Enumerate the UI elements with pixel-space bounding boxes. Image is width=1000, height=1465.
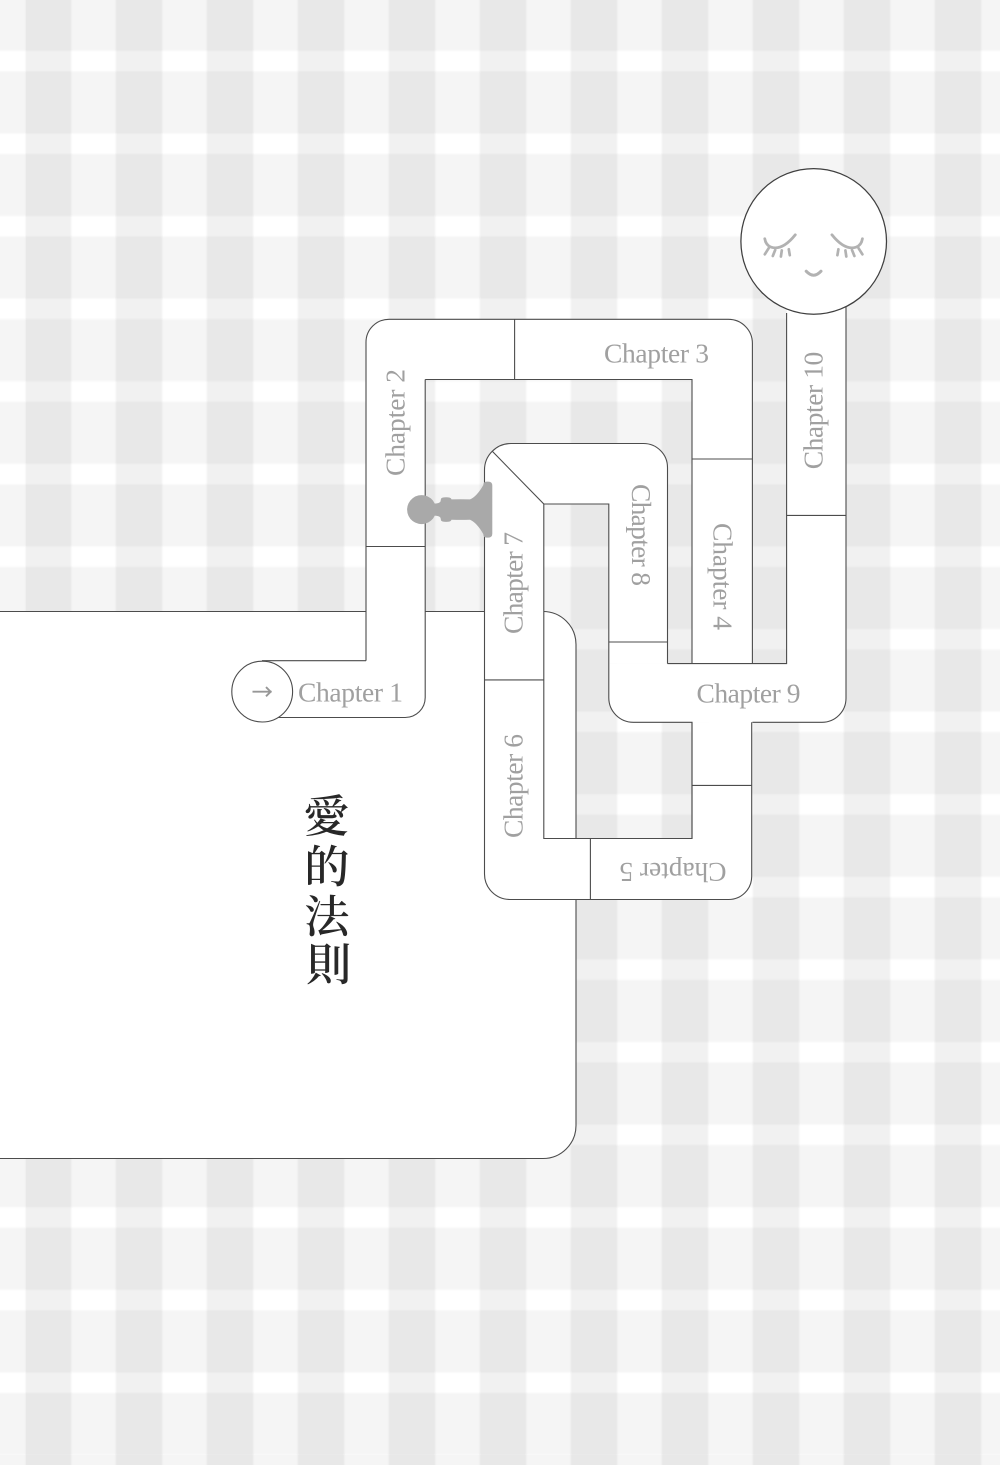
svg-text:Chapter 10: Chapter 10 [798, 352, 829, 470]
svg-text:Chapter 4: Chapter 4 [708, 523, 739, 630]
svg-text:Chapter 5: Chapter 5 [620, 857, 727, 888]
svg-text:Chapter 2: Chapter 2 [379, 369, 410, 476]
svg-text:Chapter 8: Chapter 8 [626, 484, 657, 586]
svg-text:Chapter 9: Chapter 9 [697, 677, 801, 708]
svg-text:Chapter 7: Chapter 7 [497, 532, 528, 634]
svg-text:Chapter 3: Chapter 3 [604, 337, 709, 368]
svg-text:Chapter 1: Chapter 1 [298, 677, 403, 708]
svg-text:Chapter 6: Chapter 6 [497, 734, 528, 838]
